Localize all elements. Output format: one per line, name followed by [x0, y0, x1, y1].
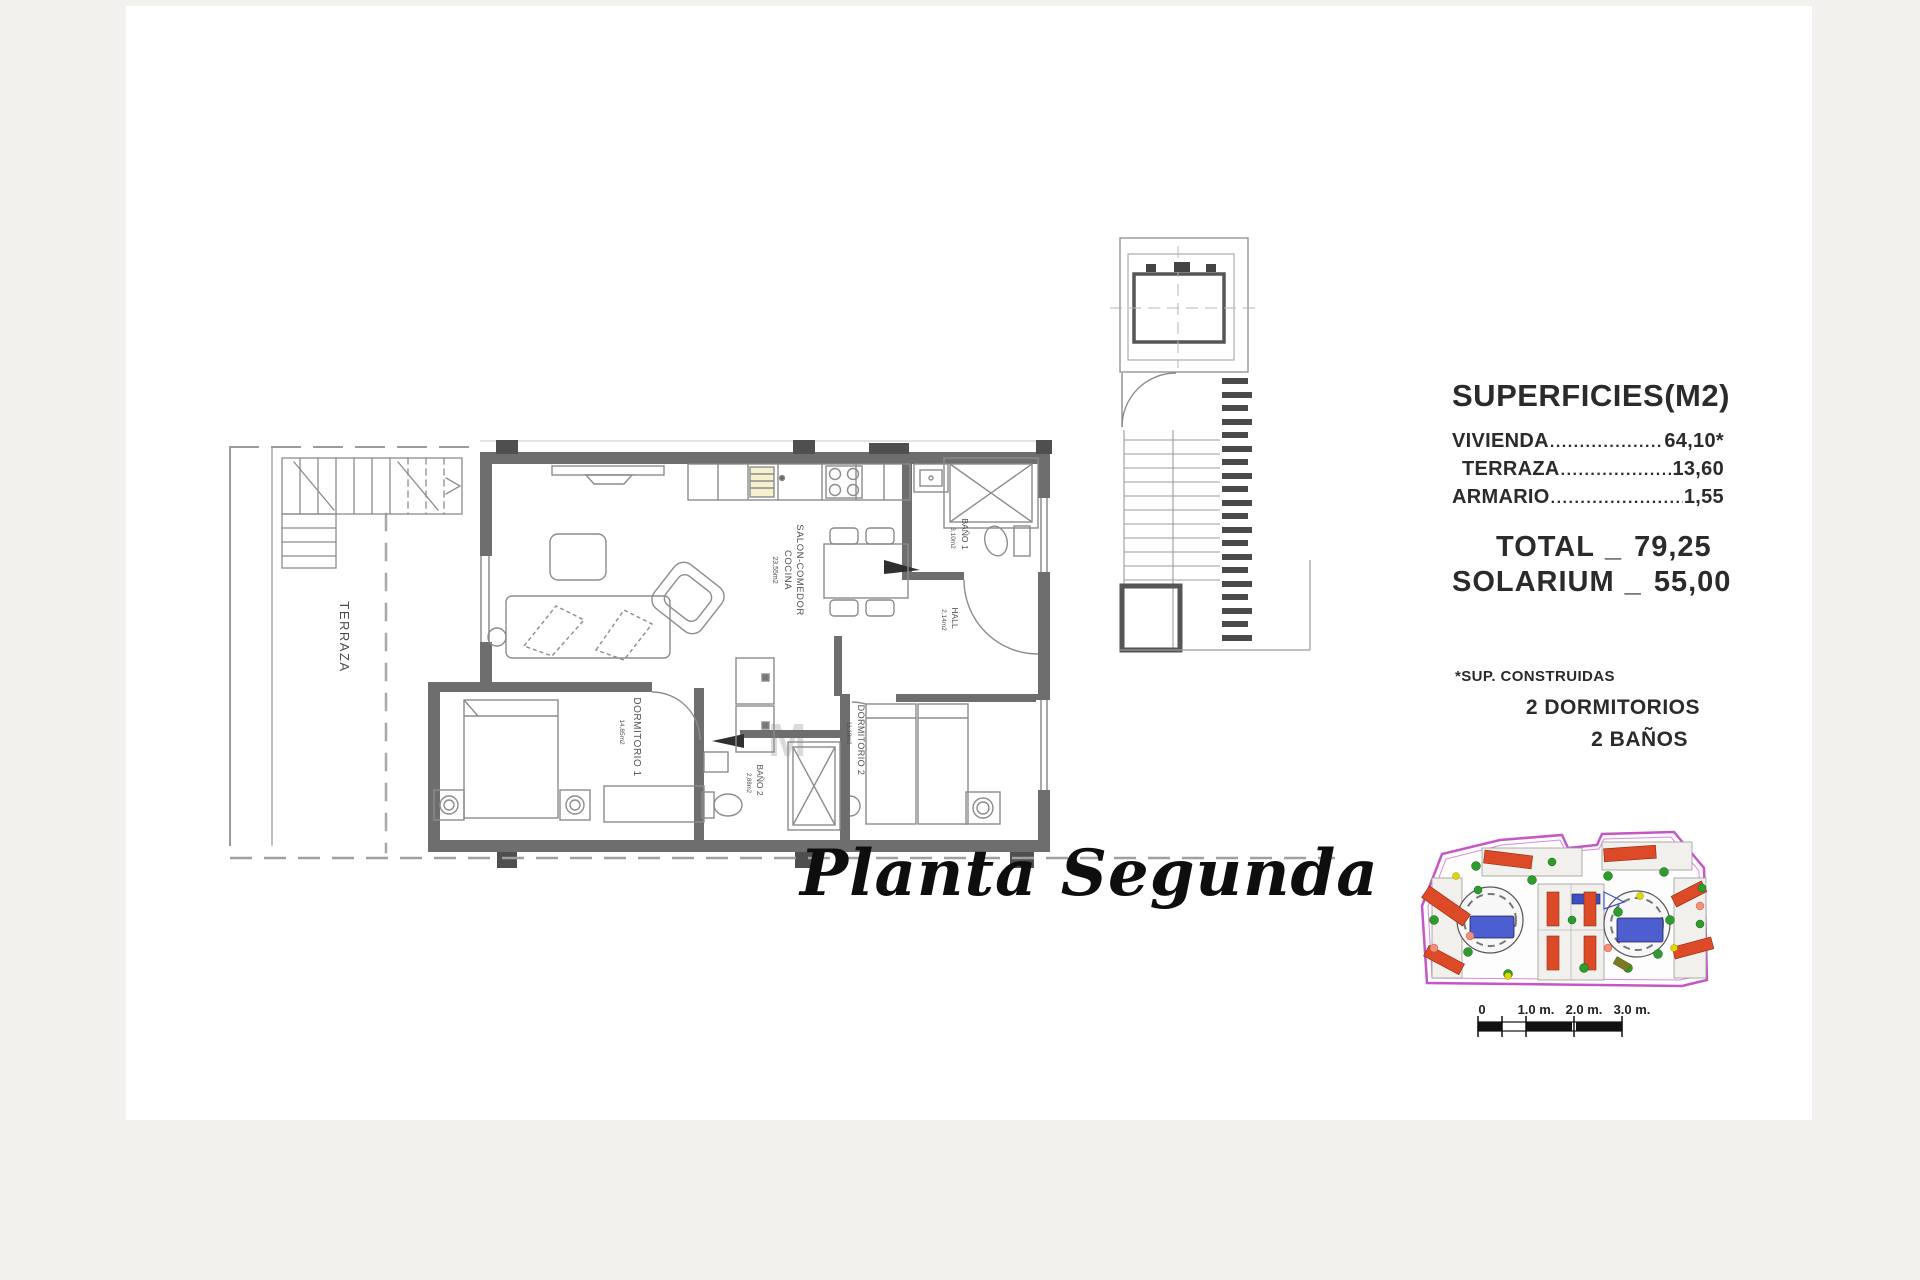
shaft-room: [1122, 586, 1180, 650]
surface-label: TERRAZA: [1462, 456, 1560, 483]
scale-label-0: 0: [1478, 1002, 1485, 1017]
surface-value: 1,55: [1684, 484, 1724, 511]
armchair: [647, 557, 729, 638]
dot-leader: [1550, 429, 1663, 456]
room-label-dormitorio2-area: 11,18m2: [845, 722, 851, 746]
features-block: 2 DORMITORIOS 2 BAÑOS: [1452, 696, 1700, 760]
room-label-terraza: TERRAZA: [337, 601, 352, 672]
room-label-bano1: BAÑO 1: [960, 518, 970, 549]
room-label-dormitorio2: DORMITORIO 2: [856, 705, 866, 776]
dishwasher: [750, 467, 774, 497]
scale-label-3m: 3.0 m.: [1614, 1002, 1651, 1017]
dot-leader: [1551, 485, 1683, 512]
surface-areas-panel: SUPERFICIES(M2) VIVIENDA 64,10* TERRAZA …: [1452, 378, 1752, 600]
kitchen-sink-drain: [780, 476, 785, 481]
pool-left: [1470, 916, 1514, 938]
surface-value: 64,10*: [1664, 428, 1724, 455]
room-label-bano2: BAÑO 2: [755, 764, 765, 795]
surface-rows: VIVIENDA 64,10* TERRAZA 13,60 ARMARIO 1,…: [1452, 428, 1724, 512]
total-label: TOTAL: [1496, 530, 1595, 565]
feature-banos: 2 BAÑOS: [1452, 728, 1700, 752]
dot-leader: [1561, 457, 1672, 484]
pool-right: [1617, 918, 1663, 942]
elevator-stair-core: [1110, 238, 1310, 650]
solarium-label: SOLARIUM: [1452, 565, 1615, 600]
coffee-table: [550, 534, 606, 580]
kitchen-counter: [688, 464, 910, 500]
total-separator: _: [1605, 530, 1622, 565]
bedroom1-furniture: [434, 700, 704, 822]
surface-label: VIVIENDA: [1452, 428, 1549, 455]
stair-treads: [1124, 430, 1220, 650]
room-label-bano2-area: 2,88m2: [745, 773, 751, 794]
floor-title: Planta Segunda: [800, 836, 1379, 911]
solarium-separator: _: [1625, 565, 1642, 600]
room-label-bano1-area: 3,10m2: [949, 527, 956, 549]
elevator-door-marks: [1146, 262, 1216, 272]
room-label-dormitorio1: DORMITORIO 1: [631, 697, 642, 776]
room-label-hall: HALL: [950, 607, 960, 629]
site-plan-thumbnail: [1422, 832, 1714, 986]
panel-heading: SUPERFICIES(M2): [1452, 378, 1752, 414]
furniture: [434, 458, 1038, 830]
sofa: [506, 596, 670, 660]
surface-row-vivienda: VIVIENDA 64,10*: [1452, 428, 1724, 456]
room-label-salon-area: 23,55m2: [771, 556, 778, 583]
scale-label-2m: 2.0 m.: [1566, 1002, 1603, 1017]
room-label-salon-line1: SALON-COMEDOR: [794, 524, 805, 615]
tv-shelf: [552, 466, 664, 484]
solarium-line: SOLARIUM _ 55,00: [1452, 565, 1752, 600]
scale-label-1m: 1.0 m.: [1518, 1002, 1555, 1017]
bedroom2-furniture: [850, 704, 1000, 824]
footnote-sup-construidas: *SUP. CONSTRUIDAS: [1455, 668, 1615, 685]
architectural-drawing: TERRAZA M O: [0, 0, 1920, 1280]
stairs-upper-flight: [282, 458, 462, 514]
bathroom1-fixtures: [914, 458, 1038, 558]
room-label-dormitorio1-area: 14,85m2: [618, 719, 625, 745]
surface-row-armario: ARMARIO 1,55: [1452, 484, 1724, 512]
solarium-value: 55,00: [1654, 565, 1732, 600]
scale-bar: 0 1.0 m. 2.0 m. 3.0 m.: [1478, 1002, 1650, 1037]
room-label-hall-area: 2,14m2: [940, 609, 947, 631]
terraza-zone: TERRAZA: [230, 447, 482, 852]
room-label-salon-line2: COCINA: [782, 550, 793, 590]
total-value: 79,25: [1634, 530, 1712, 565]
surface-label: ARMARIO: [1452, 484, 1550, 511]
surface-row-terraza: TERRAZA 13,60: [1452, 456, 1724, 484]
total-line: TOTAL _ 79,25: [1452, 530, 1752, 565]
stair-comb-steps: [1222, 378, 1252, 641]
totals-block: TOTAL _ 79,25 SOLARIUM _ 55,00: [1452, 530, 1752, 600]
feature-dormitorios: 2 DORMITORIOS: [1452, 696, 1700, 720]
stairs-lower-steps: [282, 514, 336, 568]
surface-value: 13,60: [1672, 456, 1724, 483]
